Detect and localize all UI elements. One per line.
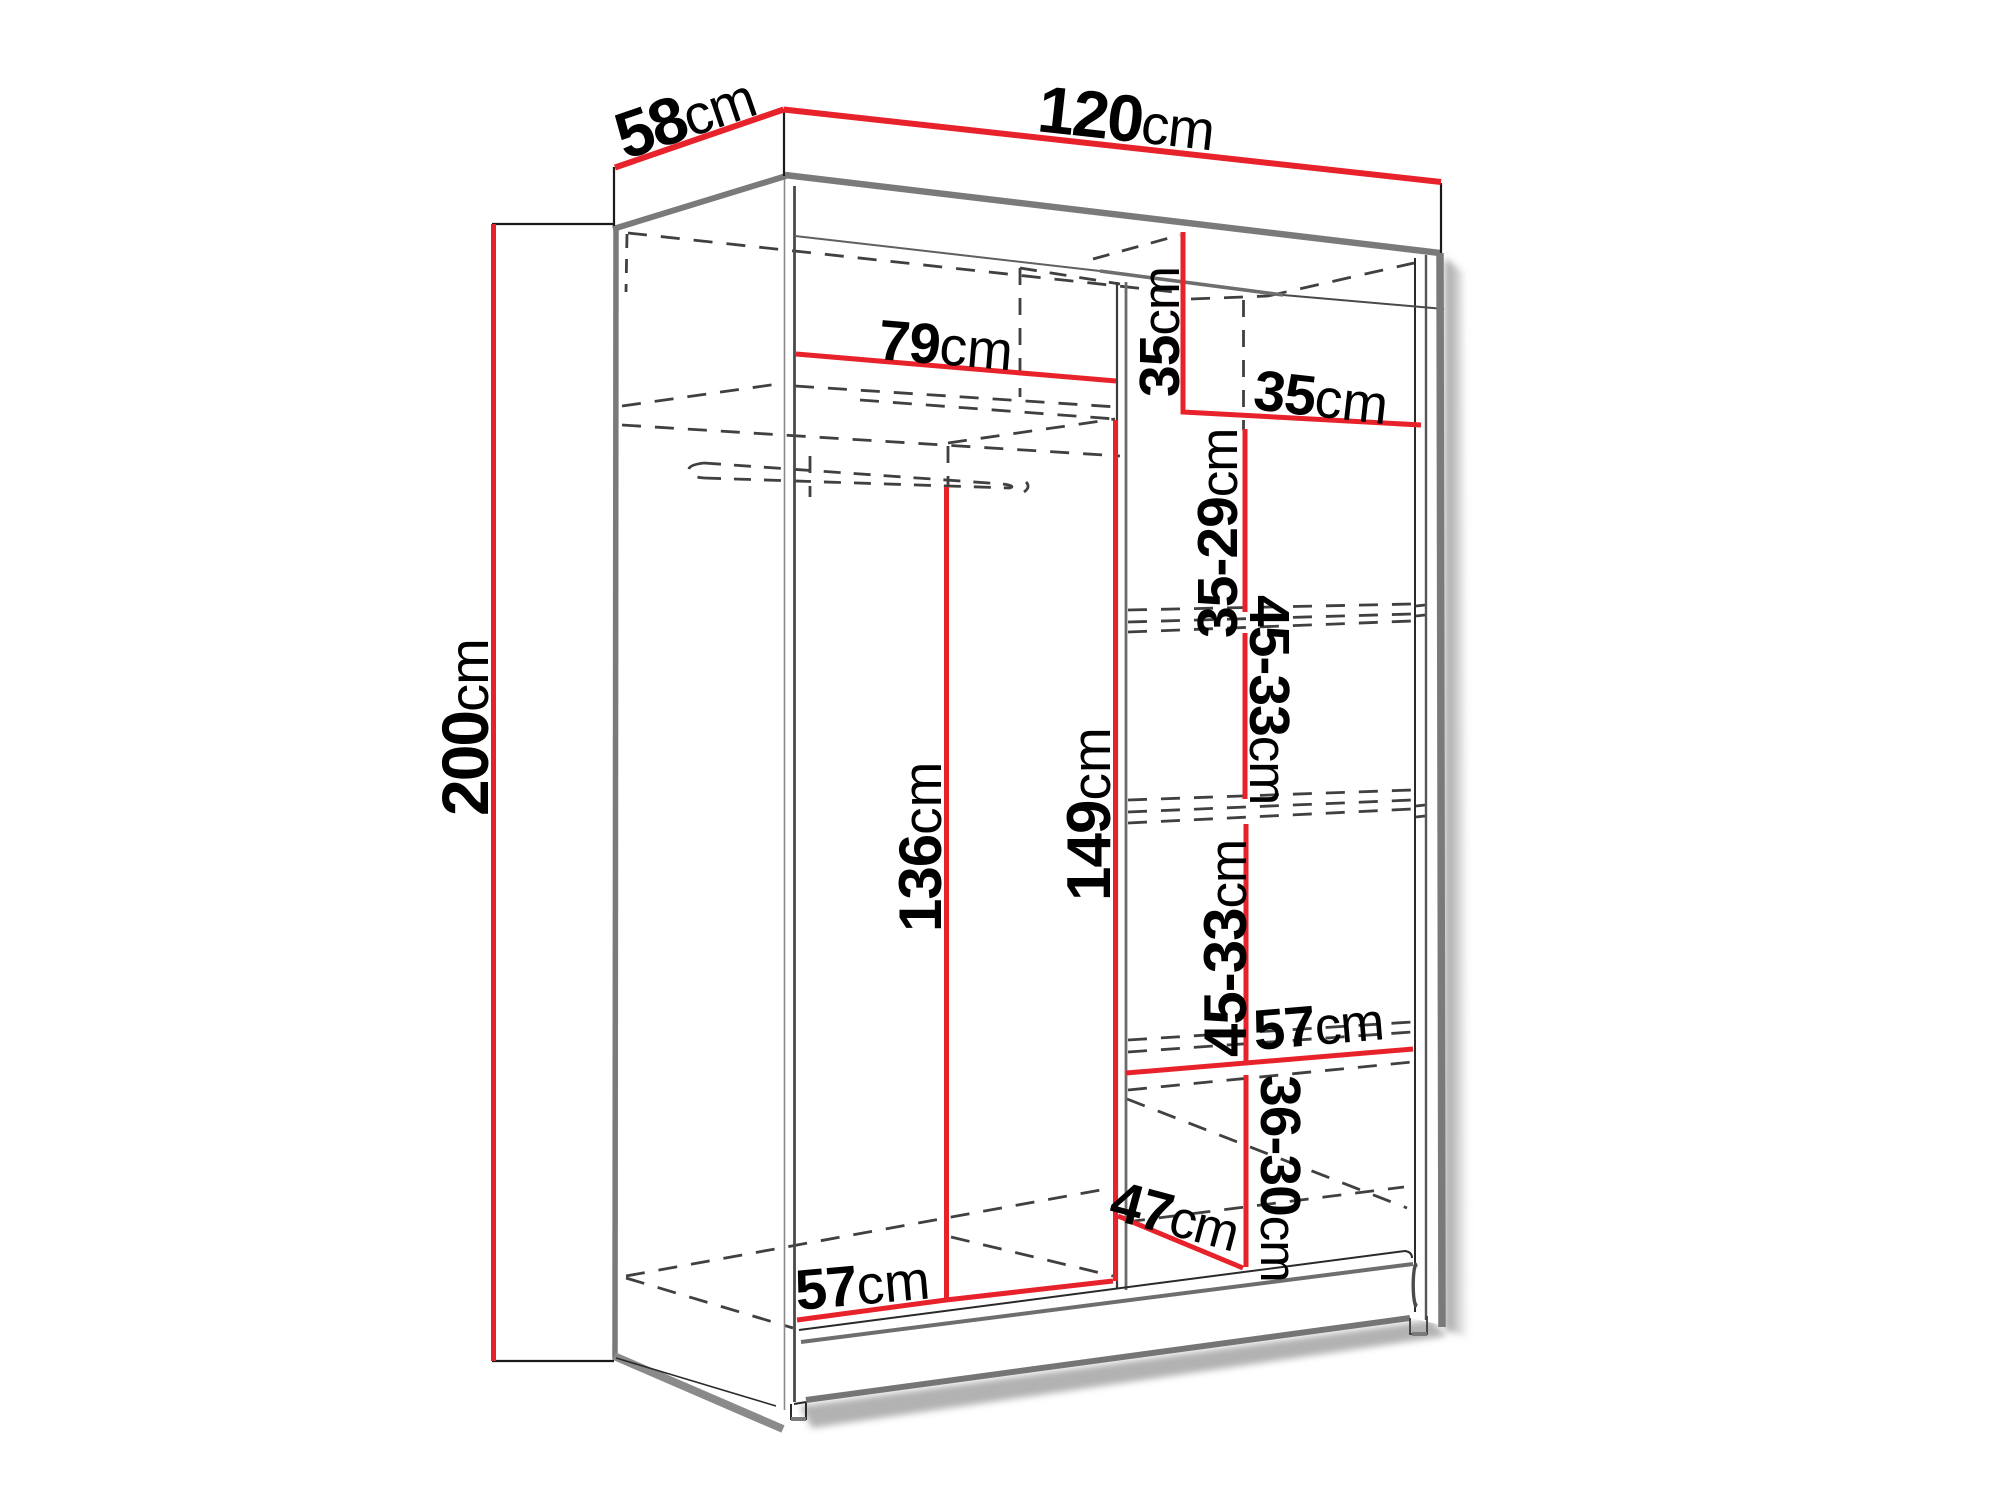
svg-text:58cm: 58cm xyxy=(605,57,763,173)
svg-text:57cm: 57cm xyxy=(793,1247,933,1322)
svg-text:36-30cm: 36-30cm xyxy=(1248,1075,1312,1282)
svg-text:35cm: 35cm xyxy=(1128,267,1192,397)
svg-text:120cm: 120cm xyxy=(1034,71,1218,164)
svg-text:79cm: 79cm xyxy=(876,308,1016,383)
svg-text:45-33cm: 45-33cm xyxy=(1237,595,1301,804)
svg-text:136cm: 136cm xyxy=(887,762,954,932)
svg-text:57cm: 57cm xyxy=(1251,988,1386,1063)
svg-text:149cm: 149cm xyxy=(1055,727,1124,901)
svg-text:200cm: 200cm xyxy=(428,639,502,816)
svg-text:45-33cm: 45-33cm xyxy=(1192,840,1259,1057)
